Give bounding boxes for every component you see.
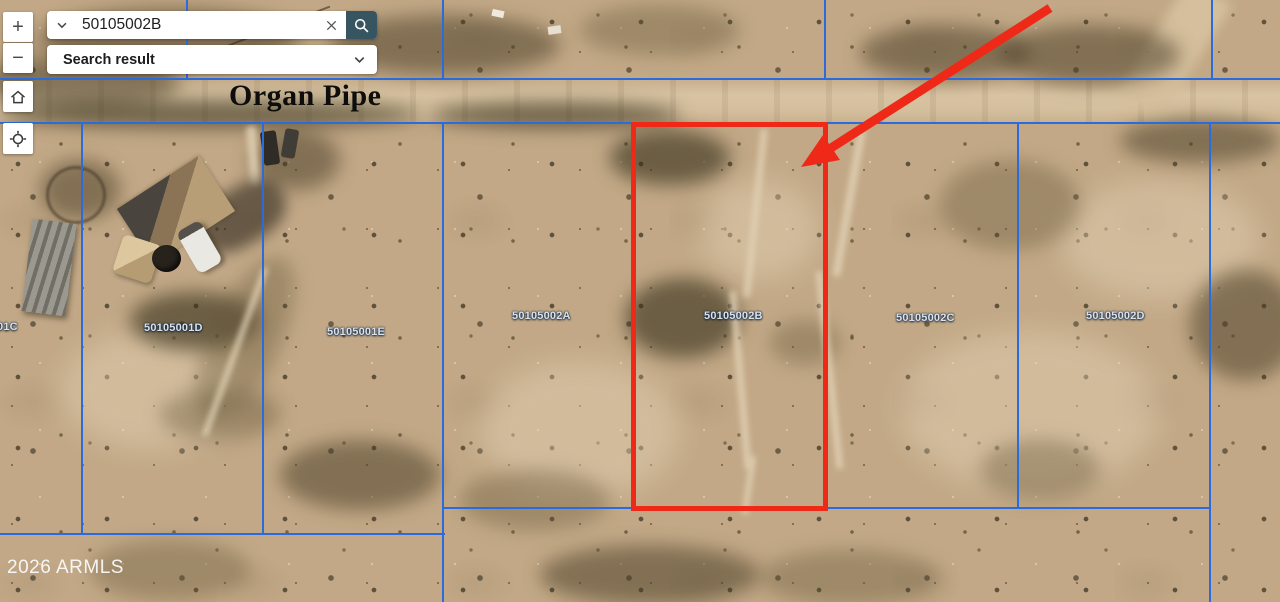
locate-button[interactable] [3, 123, 33, 154]
vegetation [940, 160, 1080, 250]
parcel-boundary-line [81, 123, 83, 534]
parcel-boundary-line [1211, 0, 1213, 79]
parcel-boundary-line [1209, 123, 1211, 602]
vegetation [980, 440, 1100, 500]
vegetation [580, 5, 740, 55]
zoom-out-button[interactable]: − [3, 43, 33, 73]
locate-icon [9, 130, 27, 148]
search-result-label: Search result [47, 52, 155, 68]
vegetation [460, 470, 610, 530]
parcel-boundary-line [1017, 123, 1019, 508]
clear-search-button[interactable] [317, 11, 346, 39]
street-label: Organ Pipe [229, 79, 382, 113]
parcel-boundary-line [0, 533, 445, 535]
parcel-boundary-line [262, 123, 264, 534]
home-icon [9, 88, 27, 106]
parcel-boundary-line [442, 123, 444, 602]
search-submit-button[interactable] [346, 11, 377, 39]
watermark: 2026 ARMLS [7, 557, 124, 579]
parcel-label-50105001e: 50105001E [327, 326, 385, 338]
search-result-dropdown[interactable]: Search result [47, 45, 377, 74]
parcel-boundary-line [0, 78, 1280, 80]
search-icon [353, 17, 370, 34]
parcel-label-50105002a: 50105002A [512, 310, 571, 322]
parcel-boundary-line [442, 0, 444, 79]
vegetation [280, 440, 440, 510]
parcel-boundary-line [824, 0, 826, 79]
search-source-dropdown-button[interactable] [47, 11, 76, 39]
search-bar [47, 11, 377, 39]
home-extent-button[interactable] [3, 81, 33, 112]
zoom-in-button[interactable]: + [3, 12, 33, 42]
vegetation [1000, 25, 1180, 85]
corral-structure [46, 166, 106, 224]
parcel-label-50105002b: 50105002B [704, 310, 763, 322]
parcel-label-50105002d: 50105002D [1086, 310, 1145, 322]
chevron-down-icon [55, 18, 69, 32]
vegetation [540, 545, 760, 602]
parcel-label-50105002c: 50105002C [896, 312, 955, 324]
parcel-label-01c: 01C [0, 321, 18, 333]
parcel-label-50105001d: 50105001D [144, 322, 203, 334]
water-tank [152, 245, 181, 272]
map-view[interactable]: Organ Pipe 01C 50105001D 50105001E 50105… [0, 0, 1280, 602]
search-input[interactable] [76, 16, 317, 34]
vegetation [1120, 118, 1280, 163]
close-icon [324, 18, 339, 33]
vegetation [760, 550, 940, 602]
chevron-down-icon [352, 52, 367, 67]
